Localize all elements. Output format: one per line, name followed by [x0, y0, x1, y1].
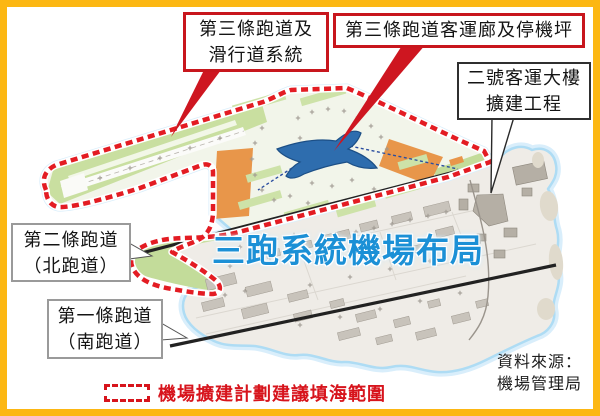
callout-text: 擴建工程	[486, 91, 562, 117]
legend: 機場擴建計劃建議填海範圍	[104, 380, 386, 406]
callout-terminal2-expansion: 二號客運大樓 擴建工程	[457, 62, 591, 120]
callout-text: 二號客運大樓	[467, 65, 581, 91]
callout-text: （南跑道）	[58, 329, 153, 355]
map-title: 三跑系統機場布局	[212, 224, 484, 272]
source-credit: 資料來源： 機場管理局	[497, 352, 582, 396]
callout-first-runway: 第一條跑道 （南跑道）	[47, 299, 163, 359]
reclamation-boundary-legend-icon	[104, 384, 150, 402]
callout-text: 第三條跑道客運廊及停機坪	[345, 16, 573, 45]
callout-second-runway: 第二條跑道 （北跑道）	[11, 223, 131, 282]
infographic-root: 第三條跑道及 滑行道系統 第三條跑道客運廊及停機坪 二號客運大樓 擴建工程 第二…	[0, 0, 600, 416]
callout-text: 第二條跑道	[24, 227, 119, 253]
source-line2: 機場管理局	[497, 374, 582, 396]
callout-text: （北跑道）	[24, 253, 119, 279]
callout-pointer-first-runway	[161, 323, 187, 340]
callout-third-runway-concourse: 第三條跑道客運廊及停機坪	[333, 13, 585, 48]
callout-third-runway-taxiway: 第三條跑道及 滑行道系統	[183, 12, 329, 72]
apron-orange-west	[213, 148, 253, 219]
callout-text: 滑行道系統	[209, 42, 304, 68]
callout-text: 第一條跑道	[58, 303, 153, 329]
source-line1: 資料來源：	[497, 352, 582, 374]
legend-label: 機場擴建計劃建議填海範圍	[158, 380, 386, 406]
callout-text: 第三條跑道及	[199, 16, 313, 42]
